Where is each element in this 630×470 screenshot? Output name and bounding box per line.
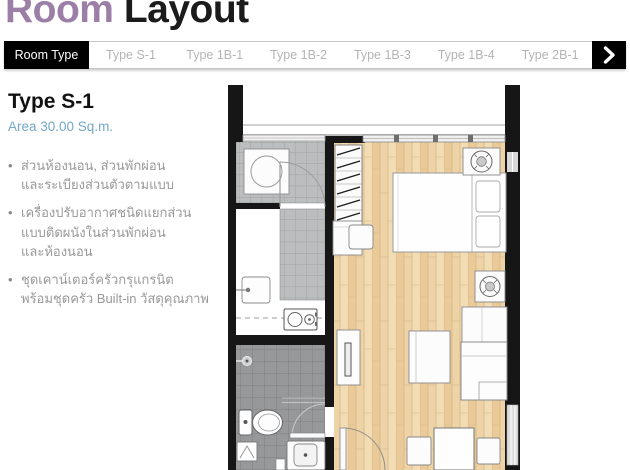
page: Room Layout Room Type Type S-1 Type 1B-1… — [0, 0, 630, 470]
unit-info-panel: Type S-1 Area 30.00 Sq.m. ส่วนห้องนอน, ส… — [8, 90, 223, 318]
tab-type-1b4[interactable]: Type 1B-4 — [424, 42, 508, 68]
wardrobe-closet — [335, 145, 362, 223]
unit-area: Area 30.00 Sq.m. — [8, 119, 223, 134]
chevron-right-icon — [603, 46, 615, 64]
feature-item: ส่วนห้องนอน, ส่วนพักผ่อน และระเบียงส่วนต… — [8, 156, 223, 194]
tv — [345, 343, 351, 376]
tab-type-2b1[interactable]: Type 2B-1 — [508, 42, 592, 68]
tab-room-type[interactable]: Room Type — [4, 41, 89, 69]
floor-drain — [237, 442, 257, 461]
dining-chair — [477, 438, 500, 464]
page-title: Room Layout — [5, 0, 249, 32]
washing-machine — [244, 149, 289, 194]
feature-item: ชุดเคาน์เตอร์ครัวกรุแกรนิต พร้อมชุดครัว … — [8, 270, 223, 308]
page-title-rest: Layout — [114, 0, 249, 31]
sofa — [461, 342, 507, 400]
dining-chair — [407, 437, 431, 465]
side-stool — [475, 271, 505, 302]
pillow — [476, 216, 500, 247]
side-table — [462, 307, 507, 342]
tab-type-s1[interactable]: Type S-1 — [89, 42, 173, 68]
tv-console — [337, 330, 360, 385]
feature-list: ส่วนห้องนอน, ส่วนพักผ่อน และระเบียงส่วนต… — [8, 156, 223, 309]
coffee-table — [409, 331, 450, 383]
floor-plan — [228, 85, 520, 470]
feature-item: เครื่องปรับอากาศชนิดแยกส่วน แบบติดผนังใน… — [8, 203, 223, 261]
bedside-fan — [463, 148, 500, 175]
unit-name: Type S-1 — [8, 90, 223, 114]
toilet — [239, 410, 283, 435]
dining-table — [434, 428, 474, 470]
balcony — [243, 125, 505, 136]
tab-type-1b1[interactable]: Type 1B-1 — [173, 42, 257, 68]
tab-type-1b2[interactable]: Type 1B-2 — [257, 42, 341, 68]
room-type-nav: Room Type Type S-1 Type 1B-1 Type 1B-2 T… — [4, 41, 626, 69]
bed — [393, 173, 506, 252]
page-title-accent: Room — [5, 0, 114, 31]
stove — [284, 309, 318, 330]
next-button[interactable] — [592, 41, 626, 69]
pillow — [476, 181, 500, 212]
desk-stool — [349, 225, 373, 249]
tab-type-1b3[interactable]: Type 1B-3 — [340, 42, 424, 68]
